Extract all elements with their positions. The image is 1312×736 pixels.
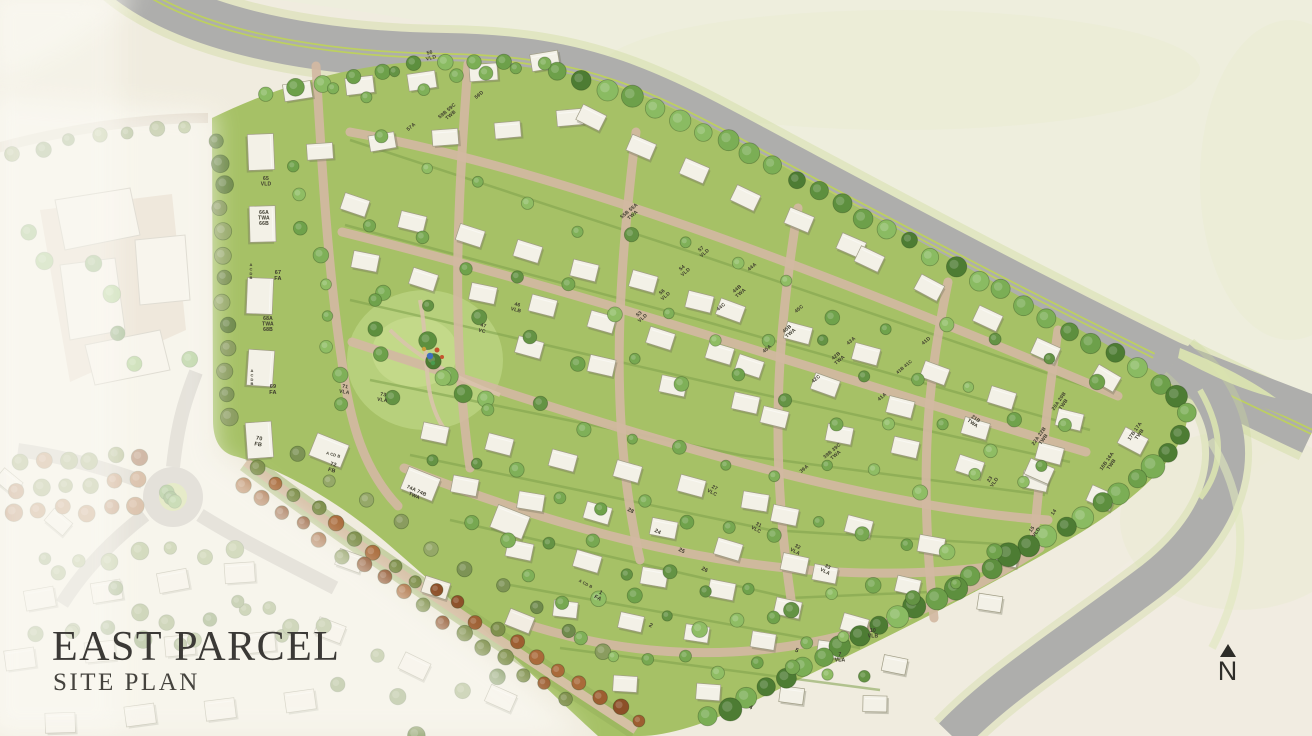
tree-highlight <box>942 546 949 553</box>
tree-highlight <box>803 639 808 644</box>
tree-highlight <box>904 235 911 242</box>
building-roof <box>613 675 638 692</box>
tree-highlight <box>429 456 434 461</box>
building-roof <box>494 121 521 139</box>
tree-highlight <box>535 398 542 405</box>
tree-highlight <box>218 178 226 186</box>
tree-highlight <box>1060 520 1069 529</box>
tree-highlight <box>972 274 981 283</box>
tree-highlight <box>702 587 707 592</box>
tree-highlight <box>630 590 637 597</box>
tree-highlight <box>480 393 487 400</box>
tree-highlight <box>513 637 519 643</box>
tree-highlight <box>467 518 474 525</box>
tree-highlight <box>349 72 355 78</box>
tree-highlight <box>1180 406 1189 415</box>
playground-equipment <box>435 348 440 353</box>
tree-highlight <box>377 66 384 73</box>
tree-highlight <box>378 288 385 295</box>
tree-highlight <box>769 530 775 536</box>
tree-highlight <box>786 605 793 612</box>
building-lot <box>612 675 639 695</box>
tree-highlight <box>222 389 229 396</box>
tree-highlight <box>994 282 1003 291</box>
tree-highlight <box>252 462 259 469</box>
tree-highlight <box>553 666 559 672</box>
tree-highlight <box>1131 472 1139 480</box>
tree-highlight <box>641 497 647 503</box>
building-roof <box>306 143 333 161</box>
scene-root: 65VLD66ATWA66BACDB67FA68ATWA68BACDB69FA7… <box>0 0 1312 736</box>
tree-highlight <box>349 534 356 541</box>
tree-highlight <box>1017 299 1026 308</box>
tree-highlight <box>335 370 342 377</box>
tree-highlight <box>827 590 832 595</box>
tree-highlight <box>734 259 739 264</box>
building-lot <box>306 142 335 162</box>
tree-highlight <box>952 580 957 585</box>
lot-label: 69FA <box>269 384 276 396</box>
tree-highlight <box>673 113 683 123</box>
tree-highlight <box>1109 346 1118 355</box>
tree-highlight <box>635 717 640 722</box>
tree-highlight <box>929 591 939 601</box>
tree-highlight <box>753 659 758 664</box>
tree-highlight <box>420 85 425 90</box>
tree-highlight <box>424 302 429 307</box>
tree-highlight <box>880 223 889 232</box>
tree-highlight <box>588 536 594 542</box>
tree-highlight <box>989 546 996 553</box>
tree-highlight <box>815 518 820 523</box>
lot-label: ACDB <box>249 262 252 280</box>
tree-highlight <box>725 523 731 529</box>
tree-highlight <box>1019 478 1024 483</box>
tree-highlight <box>493 624 499 630</box>
tree-highlight <box>513 273 519 279</box>
tree-highlight <box>873 619 881 627</box>
tree-highlight <box>1037 462 1042 467</box>
tree-highlight <box>217 225 225 233</box>
tree-highlight <box>856 212 865 221</box>
tree-highlight <box>1009 415 1016 422</box>
building-roof <box>750 631 776 651</box>
lot-label: ACDB <box>250 368 253 386</box>
tree-highlight <box>371 296 377 302</box>
tree-highlight <box>1046 355 1051 360</box>
tree-highlight <box>532 603 538 609</box>
tree-highlight <box>744 585 749 590</box>
tree-highlight <box>1169 389 1179 399</box>
tree-highlight <box>827 313 834 320</box>
tree-highlight <box>545 539 550 544</box>
tree-highlight <box>1075 510 1085 520</box>
tree-highlight <box>564 280 570 286</box>
tree-highlight <box>295 190 301 196</box>
tree-highlight <box>903 541 908 546</box>
tree-highlight <box>965 383 970 388</box>
tree-highlight <box>694 624 701 631</box>
tree-highlight <box>939 420 944 425</box>
tree-highlight <box>915 487 922 494</box>
tree-highlight <box>540 679 546 685</box>
tree-highlight <box>453 597 459 603</box>
tree-highlight <box>623 571 628 576</box>
tree-highlight <box>214 203 221 210</box>
tree-highlight <box>824 671 829 676</box>
tree-highlight <box>217 250 225 258</box>
tree-highlight <box>629 436 634 441</box>
tree-highlight <box>711 336 716 341</box>
tree-highlight <box>734 370 740 376</box>
tree-highlight <box>597 646 604 653</box>
tree-highlight <box>525 332 531 338</box>
tree-highlight <box>986 446 992 452</box>
tree-highlight <box>573 359 580 366</box>
tree-highlight <box>474 178 479 183</box>
tree-highlight <box>818 651 826 659</box>
tree-highlight <box>625 89 635 99</box>
tree-highlight <box>519 671 525 677</box>
tree-highlight <box>337 400 343 406</box>
tree-highlight <box>890 609 900 619</box>
tree-highlight <box>411 577 417 583</box>
tree-highlight <box>701 710 710 719</box>
tree-highlight <box>819 336 824 341</box>
tree-highlight <box>713 668 719 674</box>
tree-highlight <box>676 379 683 386</box>
lot-label: 66ATWA66B <box>258 210 270 227</box>
tree-highlight <box>791 174 799 182</box>
tree-highlight <box>322 342 328 348</box>
tree-highlight <box>223 320 230 327</box>
tree-highlight <box>836 197 845 206</box>
tree-highlight <box>557 598 563 604</box>
tree-highlight <box>418 233 424 239</box>
tree-highlight <box>610 653 615 658</box>
tree-highlight <box>498 56 505 63</box>
tree-highlight <box>531 652 538 659</box>
tree-highlight <box>500 652 507 659</box>
tree-highlight <box>824 462 829 467</box>
fade-overlay <box>0 0 120 736</box>
tree-highlight <box>289 81 297 89</box>
building-lot <box>432 128 461 148</box>
north-label: N <box>1206 657 1250 685</box>
tree-highlight <box>317 78 325 86</box>
tree-highlight <box>540 59 546 65</box>
tree-highlight <box>1161 446 1169 454</box>
tree-highlight <box>316 250 323 257</box>
tree-highlight <box>665 310 670 315</box>
tree-highlight <box>481 68 487 74</box>
tree-highlight <box>913 375 919 381</box>
tree-highlight <box>512 465 519 472</box>
tree-highlight <box>574 74 583 83</box>
tree-highlight <box>595 692 602 699</box>
tree-highlight <box>860 672 865 677</box>
site-plan-page: 65VLD66ATWA66BACDB67FA68ATWA68BACDB69FA7… <box>0 0 1312 736</box>
tree-highlight <box>942 320 948 326</box>
tree-highlight <box>388 392 395 399</box>
tree-highlight <box>1154 378 1163 387</box>
tree-highlight <box>766 159 774 167</box>
tree-highlight <box>626 230 633 237</box>
tree-highlight <box>499 581 505 587</box>
tree-highlight <box>261 89 267 95</box>
tree-highlight <box>315 503 321 509</box>
tree-highlight <box>426 544 433 551</box>
tree-highlight <box>432 585 438 591</box>
tree-highlight <box>470 618 476 624</box>
tree-highlight <box>477 642 484 649</box>
tree-highlight <box>924 251 932 259</box>
tree-highlight <box>377 132 383 138</box>
tree-highlight <box>1060 420 1066 426</box>
tree-highlight <box>857 529 864 536</box>
tree-highlight <box>665 567 671 573</box>
tree-highlight <box>391 562 397 568</box>
tree-highlight <box>1173 428 1182 437</box>
tree-highlight <box>376 349 383 356</box>
tree-highlight <box>469 57 476 64</box>
tree-highlight <box>561 694 567 700</box>
tree-highlight <box>739 691 748 700</box>
tree-highlight <box>289 491 295 497</box>
building-lot <box>695 683 722 703</box>
tree-highlight <box>853 629 862 638</box>
tree-highlight <box>219 272 226 279</box>
tree-highlight <box>271 479 277 485</box>
lot-label: 68ATWA68B <box>262 316 274 333</box>
building-roof <box>696 683 721 701</box>
tree-highlight <box>908 593 915 600</box>
tree-highlight <box>437 372 444 379</box>
building-lot <box>244 277 274 316</box>
tree-highlight <box>408 58 415 65</box>
tree-highlight <box>664 612 669 617</box>
tree-highlight <box>367 547 374 554</box>
tree-highlight <box>462 264 468 270</box>
tree-highlight <box>396 516 403 523</box>
tree-highlight <box>391 68 396 73</box>
north-arrow: N <box>1206 644 1250 685</box>
tree-highlight <box>503 535 510 542</box>
tree-highlight <box>722 462 727 467</box>
tree-highlight <box>574 678 580 684</box>
building-lot <box>863 696 889 714</box>
tree-highlight <box>721 133 730 142</box>
site-plan-canvas: 65VLD66ATWA66BACDB67FA68ATWA68BACDB69FA7… <box>0 0 1312 736</box>
tree-highlight <box>681 652 686 657</box>
tree-highlight <box>223 411 231 419</box>
tree-highlight <box>600 83 610 93</box>
tree-highlight <box>732 615 738 621</box>
tree-highlight <box>682 238 687 243</box>
tree-highlight <box>860 372 865 377</box>
tree-highlight <box>832 420 838 426</box>
tree-highlight <box>770 472 775 477</box>
tree-highlight <box>722 701 732 711</box>
tree-highlight <box>764 336 770 342</box>
tree-highlight <box>370 324 377 331</box>
tree-highlight <box>574 228 579 233</box>
tree-highlight <box>682 517 688 523</box>
tree-highlight <box>1096 495 1105 504</box>
tree-highlight <box>459 628 466 635</box>
building-lot <box>778 686 806 707</box>
tree-highlight <box>363 93 368 98</box>
tree-highlight <box>963 569 972 578</box>
tree-highlight <box>884 420 890 426</box>
tree-highlight <box>1083 336 1092 345</box>
tree-highlight <box>295 223 301 229</box>
tree-highlight <box>1040 312 1049 321</box>
tree-highlight <box>780 396 786 402</box>
tree-highlight <box>564 626 570 632</box>
tree-highlight <box>331 518 338 525</box>
playground-equipment <box>431 361 435 365</box>
building-lot <box>494 121 523 141</box>
tree-highlight <box>644 655 649 660</box>
tree-highlight <box>512 64 517 69</box>
tree-highlight <box>840 633 845 638</box>
tree-highlight <box>422 334 430 342</box>
tree-highlight <box>214 158 222 166</box>
tree-highlight <box>325 477 330 482</box>
tree-highlight <box>1092 377 1099 384</box>
building-lot <box>244 349 274 389</box>
tree-highlight <box>882 325 887 330</box>
tree-highlight <box>697 126 705 134</box>
playground-equipment <box>427 353 433 359</box>
tree-highlight <box>440 57 447 64</box>
tree-highlight <box>365 221 371 227</box>
tree-highlight <box>615 701 622 708</box>
tree-highlight <box>985 562 994 571</box>
tree-highlight <box>1130 361 1139 370</box>
tree-highlight <box>216 297 223 304</box>
tree-highlight <box>597 505 603 511</box>
tree-highlight <box>329 84 334 89</box>
tree-highlight <box>760 680 768 688</box>
tree-highlight <box>1145 458 1156 469</box>
tree-highlight <box>289 162 294 167</box>
tree-highlight <box>782 277 787 282</box>
building-roof <box>432 128 459 146</box>
tree-highlight <box>742 146 751 155</box>
tree-highlight <box>362 495 368 501</box>
tree-highlight <box>870 466 875 471</box>
tree-highlight <box>1063 326 1071 334</box>
tree-highlight <box>813 184 821 192</box>
tree-highlight <box>219 366 226 373</box>
tree-highlight <box>524 571 530 577</box>
tree-highlight <box>452 71 458 77</box>
tree-highlight <box>610 309 617 316</box>
tree-highlight <box>551 65 559 73</box>
tree-highlight <box>324 312 329 317</box>
building-lot <box>245 133 275 172</box>
lot-label: 67FA <box>274 270 281 282</box>
tree-highlight <box>576 633 582 639</box>
tree-highlight <box>868 580 875 587</box>
tree-highlight <box>1111 486 1121 496</box>
tree-highlight <box>473 460 478 465</box>
tree-highlight <box>675 443 681 449</box>
tree-highlight <box>523 199 529 205</box>
tree-highlight <box>631 355 636 360</box>
tree-highlight <box>322 281 327 286</box>
tree-highlight <box>457 387 465 395</box>
tree-highlight <box>292 449 299 456</box>
playground-equipment <box>422 347 426 351</box>
tree-highlight <box>556 494 561 499</box>
tree-highlight <box>648 102 657 111</box>
tree-highlight <box>459 564 466 571</box>
tree-highlight <box>223 343 230 350</box>
tree-highlight <box>484 406 489 411</box>
tree-highlight <box>787 662 794 669</box>
tree-highlight <box>424 165 429 170</box>
tree-highlight <box>949 260 958 269</box>
building-roof <box>863 696 887 712</box>
playground-equipment <box>440 355 444 359</box>
tree-highlight <box>769 613 775 619</box>
tree-highlight <box>991 335 996 340</box>
building-roof <box>977 593 1003 612</box>
tree-highlight <box>474 312 481 319</box>
tree-highlight <box>1021 538 1031 548</box>
tree-highlight <box>579 425 585 431</box>
tree-highlight <box>971 470 976 475</box>
